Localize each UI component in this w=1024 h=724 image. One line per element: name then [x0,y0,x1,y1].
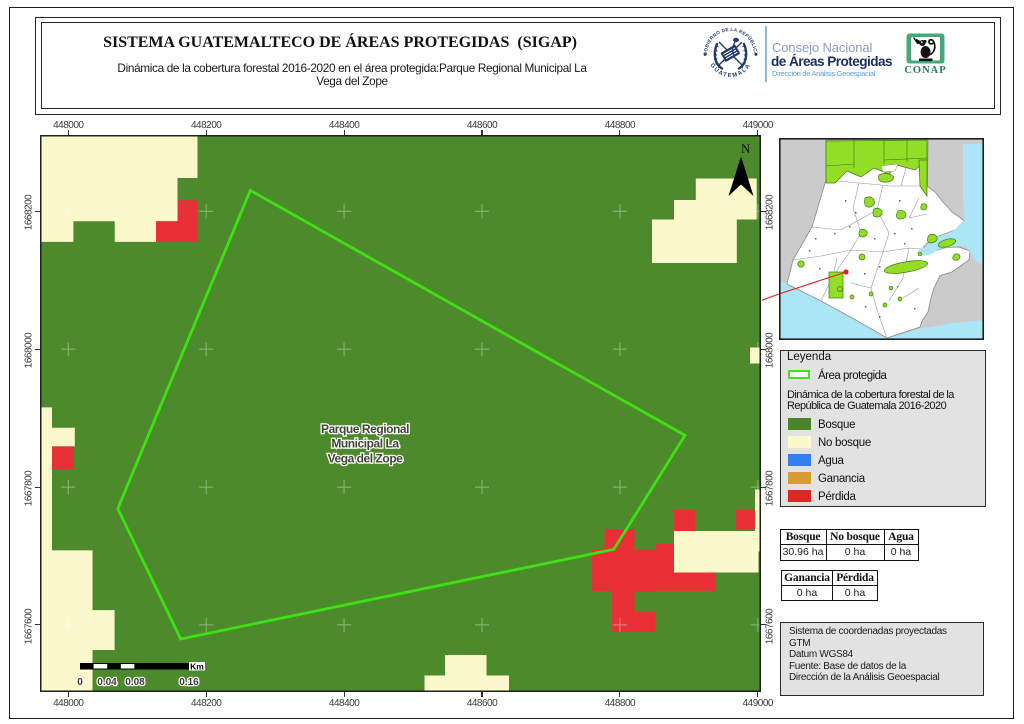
svg-text:Vega del Zope: Vega del Zope [328,451,404,465]
svg-text:0: 0 [77,677,83,688]
svg-text:0.16: 0.16 [179,677,199,688]
svg-text:0.08: 0.08 [125,677,145,688]
svg-text:GUATEMALA: GUATEMALA [709,62,753,79]
svg-text:Parque Regional: Parque Regional [321,422,409,436]
svg-text:Municipal La: Municipal La [331,437,399,451]
svg-text:CONAP: CONAP [905,65,947,75]
svg-text:N: N [741,141,751,156]
svg-text:0.04: 0.04 [97,677,117,688]
svg-text:Km: Km [190,662,204,672]
